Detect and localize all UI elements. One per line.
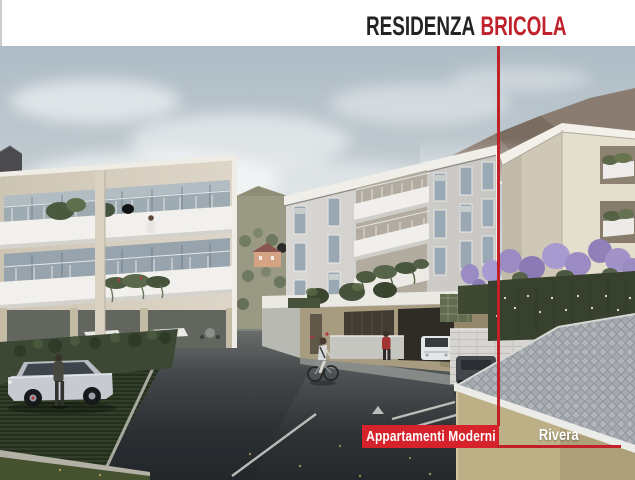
white-car (421, 336, 452, 360)
marketing-poster: RESIDENZA BRICOLA (0, 0, 635, 480)
location-label-box: Rivera (514, 426, 604, 445)
primary-label: Appartamenti Moderni (366, 429, 495, 445)
header-edge-line (0, 0, 2, 46)
location-label: Rivera (539, 427, 579, 445)
title-primary: RESIDENZA (366, 11, 475, 41)
photo-rendering (0, 46, 635, 480)
red-reference-line (497, 46, 500, 426)
header-band: RESIDENZA BRICOLA (0, 0, 635, 46)
primary-label-box: Appartamenti Moderni (362, 425, 499, 448)
page-title: RESIDENZA BRICOLA (366, 13, 567, 40)
building-left (0, 155, 237, 348)
title-accent: BRICOLA (480, 11, 566, 41)
retaining-wall (330, 336, 404, 359)
red-underline (497, 445, 621, 448)
